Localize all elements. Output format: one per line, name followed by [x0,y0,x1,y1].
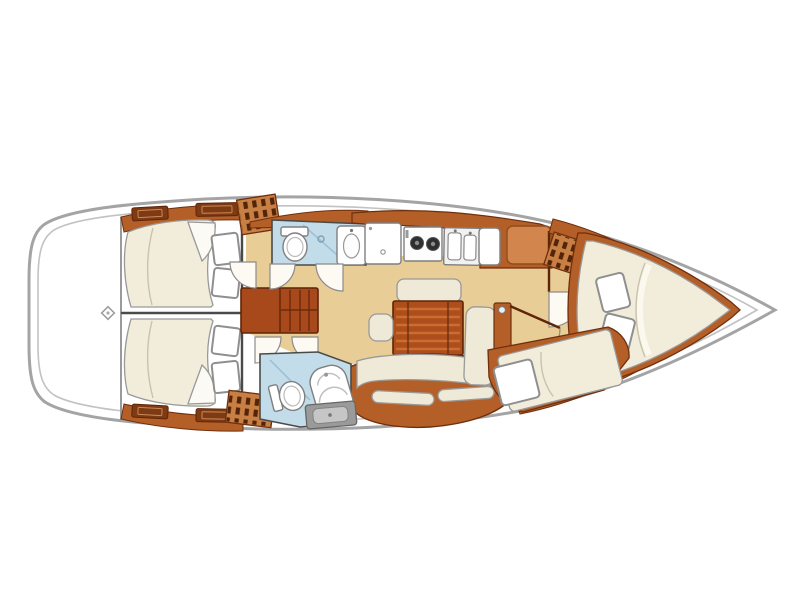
stove [404,227,442,261]
drawer [196,203,238,217]
settee-seat-cushion [372,390,435,405]
shower-tray [305,401,357,429]
companionway-steps [241,288,318,333]
aft-cabin-starboard [121,318,243,431]
salon-table [393,301,463,355]
aft-cabin-port [121,203,243,308]
salon-stool [369,314,393,341]
drawer [132,206,169,221]
sofa-pillow [493,359,540,406]
pillow [212,361,241,394]
nav-desk-panel [507,226,551,264]
toilet [281,227,308,261]
drawer [132,404,169,419]
washbasin [337,226,366,265]
double-sink [444,228,481,266]
door-knob-icon [499,307,506,314]
pillow [211,233,240,266]
head-aft [260,352,357,429]
chart-table [479,228,500,265]
refrigerator [365,223,401,264]
salon-bench [397,279,461,302]
yacht-layout-diagram [0,0,800,600]
pillow [211,326,240,357]
boat-floor-plan-canvas [0,0,800,600]
